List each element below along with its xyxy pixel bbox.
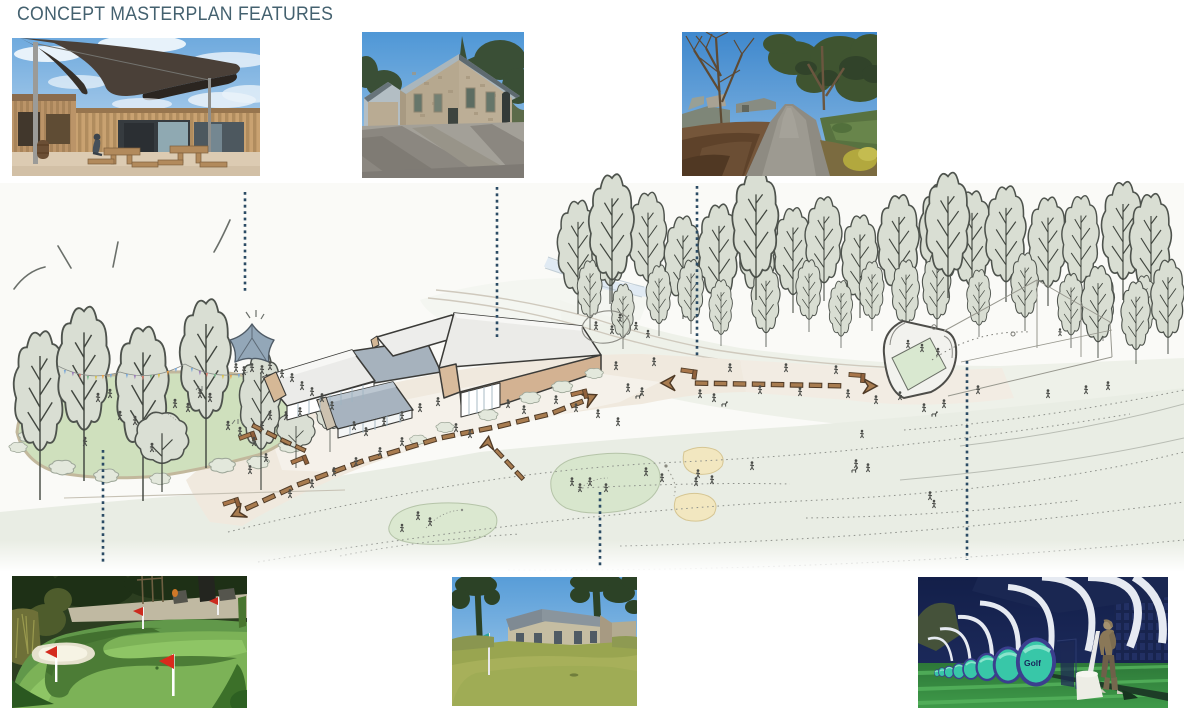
svg-text:Golf: Golf bbox=[1024, 658, 1041, 668]
